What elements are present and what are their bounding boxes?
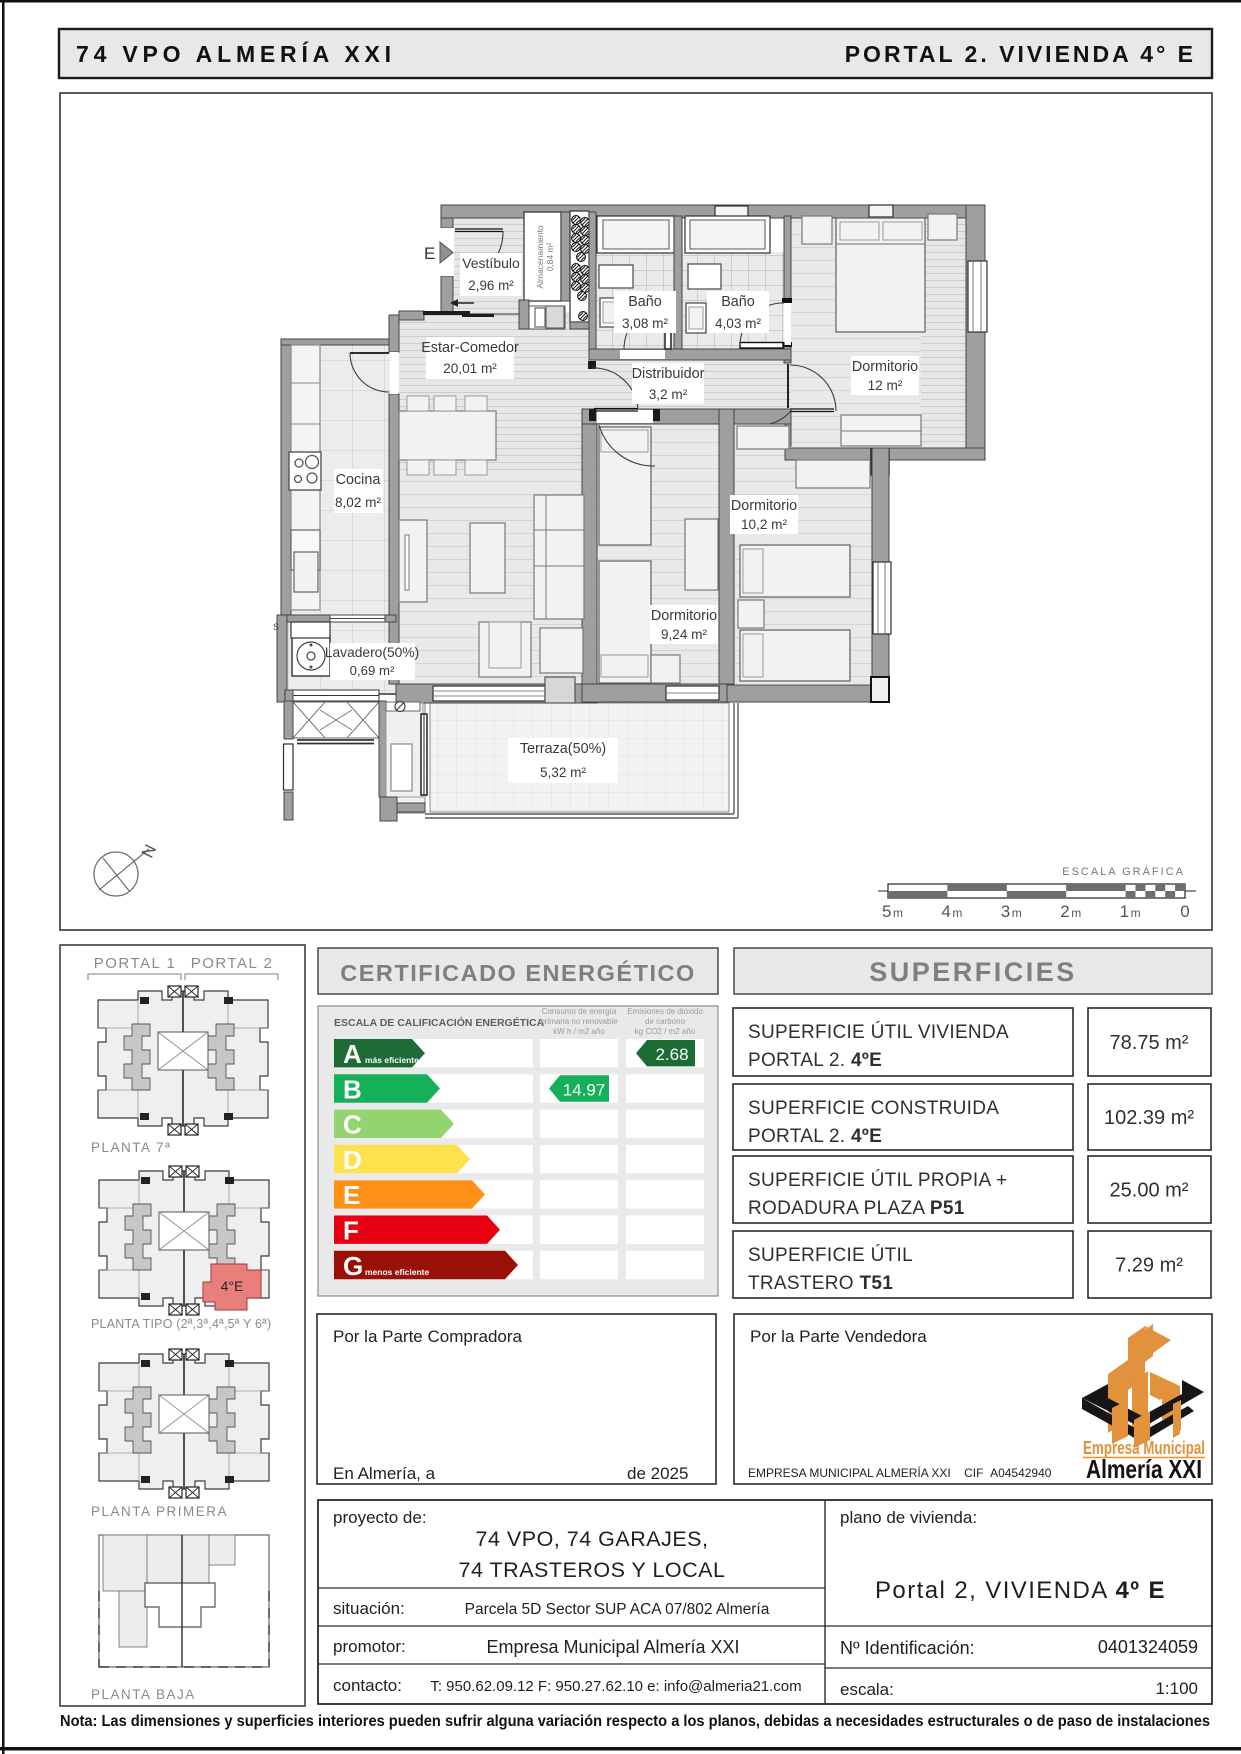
svg-text:ESCALA GRÁFICA: ESCALA GRÁFICA <box>1062 865 1185 878</box>
svg-text:2.68: 2.68 <box>655 1045 688 1064</box>
svg-text:Lavadero(50%): Lavadero(50%) <box>325 645 419 660</box>
svg-text:proyecto de:: proyecto de: <box>333 1508 427 1527</box>
svg-text:G: G <box>343 1251 363 1281</box>
svg-text:4,03 m²: 4,03 m² <box>715 316 762 331</box>
svg-text:SUPERFICIE CONSTRUIDA: SUPERFICIE CONSTRUIDA <box>748 1098 999 1119</box>
svg-text:SUPERFICIES: SUPERFICIES <box>869 957 1077 987</box>
svg-text:m: m <box>1131 906 1141 920</box>
svg-text:2,96 m²: 2,96 m² <box>468 278 514 293</box>
svg-text:menos eficiente: menos eficiente <box>365 1267 430 1277</box>
svg-text:m: m <box>1071 906 1081 920</box>
svg-text:PLANTA 7ª: PLANTA 7ª <box>91 1140 172 1155</box>
svg-text:PLANTA BAJA: PLANTA BAJA <box>91 1687 196 1702</box>
svg-text:1:100: 1:100 <box>1155 1679 1198 1698</box>
svg-text:escala:: escala: <box>840 1680 894 1699</box>
svg-text:74 VPO, 74 GARAJES,: 74 VPO, 74 GARAJES, <box>476 1527 709 1551</box>
svg-text:S: S <box>273 622 279 632</box>
svg-text:Por la Parte Vendedora: Por la Parte Vendedora <box>750 1327 927 1346</box>
svg-text:Vestíbulo: Vestíbulo <box>462 255 520 271</box>
svg-text:de carbono: de carbono <box>645 1017 686 1026</box>
svg-text:En Almería, a: En Almería, a <box>333 1464 436 1483</box>
svg-text:kW h / m2 año: kW h / m2 año <box>553 1027 605 1036</box>
svg-text:Nota: Las dimensiones y superf: Nota: Las dimensiones y superficies inte… <box>60 1713 1210 1730</box>
svg-text:SUPERFICIE ÚTIL PROPIA +: SUPERFICIE ÚTIL PROPIA + <box>748 1169 1007 1191</box>
svg-text:Parcela 5D Sector SUP ACA 07/8: Parcela 5D Sector SUP ACA 07/802 Almería <box>465 1601 770 1618</box>
svg-text:5: 5 <box>882 902 891 921</box>
svg-text:PORTAL 2. 4ºE: PORTAL 2. 4ºE <box>748 1050 882 1071</box>
svg-text:D: D <box>343 1145 362 1175</box>
svg-text:4°E: 4°E <box>221 1278 244 1294</box>
svg-text:10,2 m²: 10,2 m² <box>741 517 788 532</box>
svg-text:PORTAL 1: PORTAL 1 <box>94 955 177 972</box>
svg-text:ESCALA DE CALIFICACIÓN ENERGÉT: ESCALA DE CALIFICACIÓN ENERGÉTICA <box>334 1016 545 1029</box>
svg-text:de 2025: de 2025 <box>627 1464 688 1483</box>
svg-text:Emisiones de dióxido: Emisiones de dióxido <box>627 1007 703 1016</box>
svg-text:3,08 m²: 3,08 m² <box>622 316 669 331</box>
svg-text:Dormitorio: Dormitorio <box>731 498 797 514</box>
svg-text:PORTAL 2. VIVIENDA 4° E: PORTAL 2. VIVIENDA 4° E <box>845 41 1196 67</box>
svg-text:PLANTA TIPO (2ª,3ª,4ª,5ª Y 6: PLANTA TIPO (2ª,3ª,4ª,5ª Y 6ª) <box>91 1317 271 1331</box>
svg-text:kg CO2 / m2 año: kg CO2 / m2 año <box>635 1027 696 1036</box>
svg-text:74 TRASTEROS Y LOCAL: 74 TRASTEROS Y LOCAL <box>459 1558 726 1582</box>
svg-text:3,2 m²: 3,2 m² <box>649 387 688 402</box>
svg-text:situación:: situación: <box>333 1599 405 1618</box>
svg-text:Por la Parte Compradora: Por la Parte Compradora <box>333 1327 523 1346</box>
svg-text:plano de vivienda:: plano de vivienda: <box>840 1508 977 1527</box>
svg-text:Dormitorio: Dormitorio <box>852 359 918 375</box>
svg-text:E: E <box>424 244 435 263</box>
svg-text:102.39 m²: 102.39 m² <box>1104 1107 1194 1129</box>
svg-text:primaria no renovable: primaria no renovable <box>540 1017 618 1026</box>
svg-text:m: m <box>952 906 962 920</box>
svg-text:Nº Identificación:: Nº Identificación: <box>840 1638 975 1658</box>
svg-text:SUPERFICIE ÚTIL: SUPERFICIE ÚTIL <box>748 1244 913 1266</box>
svg-text:B: B <box>343 1074 362 1104</box>
svg-text:CERTIFICADO ENERGÉTICO: CERTIFICADO ENERGÉTICO <box>340 959 695 986</box>
svg-text:Terraza(50%): Terraza(50%) <box>520 741 606 757</box>
svg-text:EMPRESA MUNICIPAL ALMERÍA XXI: EMPRESA MUNICIPAL ALMERÍA XXI CIF A04542… <box>748 1465 1052 1480</box>
svg-text:Portal 2, VIVIENDA 4º E: Portal 2, VIVIENDA 4º E <box>875 1577 1165 1604</box>
svg-text:contacto:: contacto: <box>333 1676 402 1695</box>
svg-text:78.75 m²: 78.75 m² <box>1110 1032 1189 1054</box>
svg-text:Almería XXI: Almería XXI <box>1086 1454 1202 1484</box>
svg-text:0,84 m²: 0,84 m² <box>545 242 555 271</box>
svg-text:A: A <box>343 1039 362 1069</box>
svg-text:más eficiente: más eficiente <box>365 1055 419 1065</box>
svg-text:Estar-Comedor: Estar-Comedor <box>421 340 519 356</box>
svg-text:PORTAL 2. 4ºE: PORTAL 2. 4ºE <box>748 1126 882 1147</box>
svg-text:Baño: Baño <box>721 294 755 310</box>
svg-text:E: E <box>343 1180 360 1210</box>
svg-text:Cocina: Cocina <box>336 472 381 488</box>
svg-text:PLANTA PRIMERA: PLANTA PRIMERA <box>91 1504 228 1519</box>
svg-text:0,69 m²: 0,69 m² <box>350 663 395 678</box>
svg-text:0401324059: 0401324059 <box>1098 1637 1198 1657</box>
svg-text:Distribuidor: Distribuidor <box>632 366 705 382</box>
svg-text:74 VPO ALMERÍA XXI: 74 VPO ALMERÍA XXI <box>76 40 396 67</box>
svg-text:25.00 m²: 25.00 m² <box>1110 1180 1189 1202</box>
svg-text:TRASTERO T51: TRASTERO T51 <box>748 1273 893 1294</box>
svg-text:T: 950.62.09.12 F: 950.27.: T: 950.62.09.12 F: 950.27.62.10 e: info@… <box>430 1678 801 1695</box>
svg-text:1: 1 <box>1120 902 1129 921</box>
svg-text:9,24 m²: 9,24 m² <box>661 627 708 642</box>
svg-text:RODADURA PLAZA P51: RODADURA PLAZA P51 <box>748 1198 965 1219</box>
svg-text:7.29 m²: 7.29 m² <box>1115 1255 1183 1277</box>
svg-text:2: 2 <box>1060 902 1069 921</box>
svg-text:Consumo de energía: Consumo de energía <box>542 1007 617 1016</box>
svg-text:Empresa Municipal Almería XXI: Empresa Municipal Almería XXI <box>486 1637 739 1657</box>
svg-text:3: 3 <box>1001 902 1010 921</box>
svg-text:SUPERFICIE ÚTIL VIVIENDA: SUPERFICIE ÚTIL VIVIENDA <box>748 1021 1009 1043</box>
svg-text:m: m <box>893 906 903 920</box>
svg-text:4: 4 <box>941 902 950 921</box>
svg-text:0: 0 <box>1180 902 1189 921</box>
svg-text:C: C <box>343 1110 362 1140</box>
svg-text:Dormitorio: Dormitorio <box>651 608 717 624</box>
svg-text:PORTAL 2: PORTAL 2 <box>191 955 274 972</box>
svg-text:Almacenamiento: Almacenamiento <box>535 225 545 289</box>
svg-text:m: m <box>1012 906 1022 920</box>
svg-text:20,01 m²: 20,01 m² <box>443 361 497 376</box>
svg-text:14.97: 14.97 <box>563 1080 606 1099</box>
svg-text:12 m²: 12 m² <box>868 378 903 393</box>
svg-text:F: F <box>343 1216 359 1246</box>
svg-text:promotor:: promotor: <box>333 1637 406 1656</box>
svg-text:8,02 m²: 8,02 m² <box>335 495 382 510</box>
svg-text:Baño: Baño <box>628 294 662 310</box>
svg-text:5,32 m²: 5,32 m² <box>540 765 587 780</box>
